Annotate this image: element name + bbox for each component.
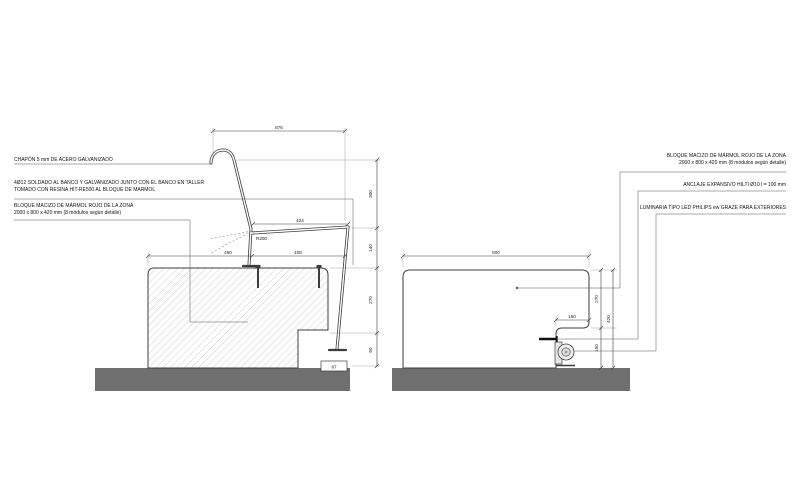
dim-width-800 xyxy=(401,253,591,267)
callout-welded-bars: 4Ø12 SOLDADO AL BANCO Y GALVANIZADO JUNT… xyxy=(14,180,204,194)
left-section-drawing: R200 876 424 xyxy=(95,125,380,391)
dim-front-width-label: 450 xyxy=(224,250,232,255)
dim-top-width-label: 876 xyxy=(275,125,283,130)
callout-steel-plate-text: CHAPÓN 5 mm DE ACERO GALVANIZADO xyxy=(14,157,113,164)
dim-total-height-label: 420 xyxy=(606,315,611,323)
marble-block-hatched xyxy=(148,268,328,368)
led-luminaire xyxy=(555,342,575,366)
right-section-drawing: 800 150 xyxy=(392,250,630,391)
dim-top-width xyxy=(211,128,347,221)
dim-foot-detail-label: 87 xyxy=(331,365,337,370)
ground-strip-left xyxy=(95,368,350,391)
callout-led-luminaire: LUMINARIA TIPO LED PHILIPS ew GRAZE PARA… xyxy=(640,205,786,212)
dim-width-800-label: 800 xyxy=(492,250,500,255)
callout-marble-block-left: BLOQUE MACIZO DE MÁRMOL ROJO DE LA ZONA … xyxy=(14,203,133,217)
dim-rear-width-label: 408 xyxy=(294,250,302,255)
foot-detail-box: 87 xyxy=(321,361,347,371)
dim-bend-note: R200 xyxy=(256,236,267,241)
dim-upper-height-label: 270 xyxy=(594,295,599,303)
dim-backrest-height-label: 300 xyxy=(368,190,373,198)
dim-notch-height-label: 150 xyxy=(594,344,599,352)
dim-seat-gap-label: 140 xyxy=(368,244,373,252)
dim-notch-width-label: 150 xyxy=(568,314,576,319)
callout-marble-block-right: BLOQUE MACIZO DE MÁRMOL ROJO DE LA ZONA … xyxy=(667,153,786,167)
dim-block-widths xyxy=(146,253,347,266)
technical-drawing-sheet: R200 876 424 xyxy=(0,0,800,500)
callout-hilti-anchor: ANCLAJE EXPANSIVO HILTI Ø10 l = 100 mm xyxy=(683,182,786,189)
right-view-height-chains: 270 150 420 xyxy=(591,268,617,370)
dim-seat-width-label: 424 xyxy=(296,218,304,223)
dim-block-base-label: 60 xyxy=(368,347,373,353)
ground-strip-right xyxy=(392,368,630,391)
drawing-linework: R200 876 424 xyxy=(0,0,800,500)
dim-block-upper-label: 270 xyxy=(368,296,373,304)
callout-steel-plate: CHAPÓN 5 mm DE ACERO GALVANIZADO xyxy=(14,157,113,164)
